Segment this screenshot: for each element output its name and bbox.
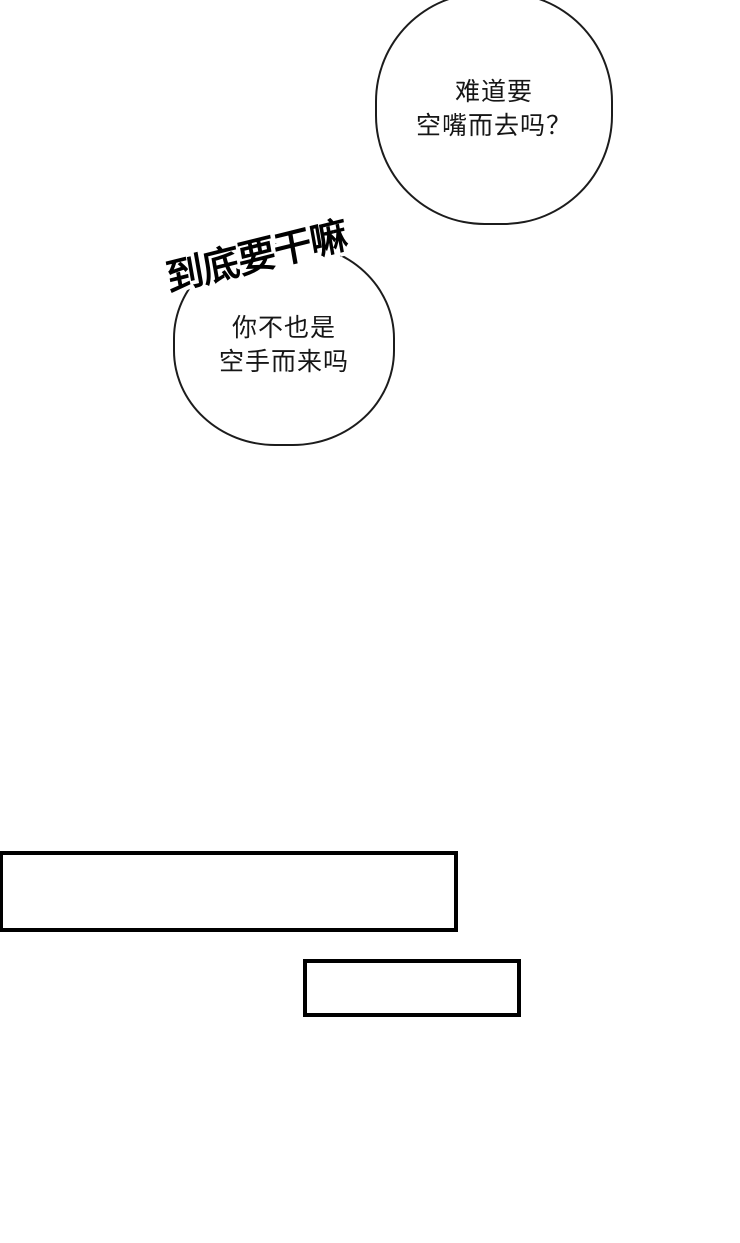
empty-panel-small: [303, 959, 521, 1017]
speech-text-line: 难道要: [455, 75, 533, 109]
empty-panel-wide: [0, 851, 458, 932]
speech-text-line: 空嘴而去吗？: [416, 109, 572, 143]
comic-page: 难道要 空嘴而去吗？ 你不也是 空手而来吗 到底要干嘛: [0, 0, 740, 1243]
speech-bubble-top-right: 难道要 空嘴而去吗？: [375, 0, 613, 225]
speech-text-line: 你不也是: [232, 311, 336, 345]
speech-text-line: 空手而来吗: [219, 345, 349, 379]
